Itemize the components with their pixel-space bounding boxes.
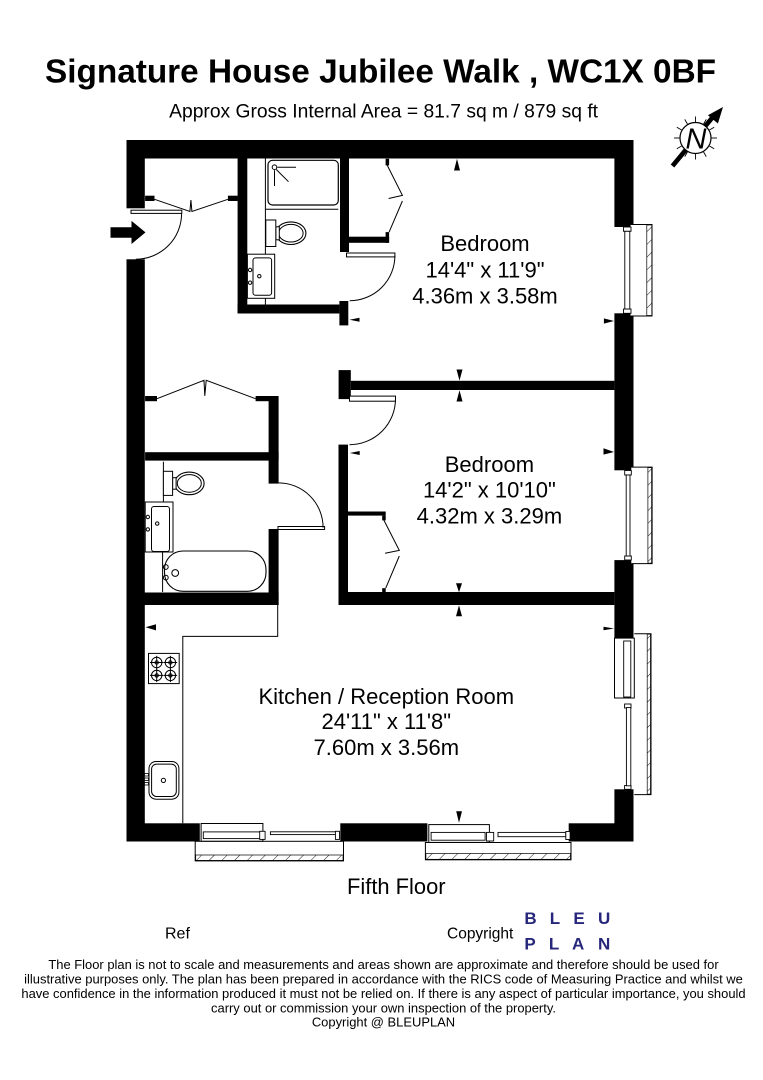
- svg-text:have confidence in the informa: have confidence in the information produ…: [21, 986, 745, 1001]
- svg-text:Signature House Jubilee Walk ,: Signature House Jubilee Walk , WC1X 0BF: [45, 53, 716, 90]
- svg-text:Ref: Ref: [165, 926, 190, 943]
- svg-text:14'4" x 11'9": 14'4" x 11'9": [425, 257, 544, 282]
- svg-text:Fifth Floor: Fifth Floor: [347, 874, 446, 899]
- svg-text:BLEU: BLEU: [524, 909, 610, 928]
- svg-text:4.32m x 3.29m: 4.32m x 3.29m: [417, 504, 563, 529]
- svg-text:4.36m x 3.58m: 4.36m x 3.58m: [412, 283, 558, 308]
- svg-text:Bedroom: Bedroom: [440, 231, 529, 256]
- svg-text:The Floor plan is not to scale: The Floor plan is not to scale and measu…: [48, 957, 719, 972]
- svg-text:7.60m x 3.56m: 7.60m x 3.56m: [314, 735, 460, 760]
- svg-text:Copyright: Copyright: [447, 926, 514, 943]
- svg-text:24'11" x 11'8": 24'11" x 11'8": [321, 709, 451, 734]
- svg-text:Kitchen / Reception Room: Kitchen / Reception Room: [259, 684, 515, 709]
- svg-text:Approx Gross Internal Area = 8: Approx Gross Internal Area = 81.7 sq m /…: [169, 102, 599, 123]
- svg-text:Bedroom: Bedroom: [445, 452, 534, 477]
- svg-text:N: N: [686, 124, 707, 156]
- svg-text:carry out or commission your o: carry out or commission your own inspect…: [211, 1000, 556, 1015]
- svg-text:Copyright @ BLEUPLAN: Copyright @ BLEUPLAN: [312, 1015, 455, 1030]
- svg-text:illustrative purposes only. Th: illustrative purposes only. The plan has…: [24, 972, 743, 987]
- svg-text:PLAN: PLAN: [524, 935, 610, 954]
- svg-text:14'2" x 10'10": 14'2" x 10'10": [423, 477, 556, 502]
